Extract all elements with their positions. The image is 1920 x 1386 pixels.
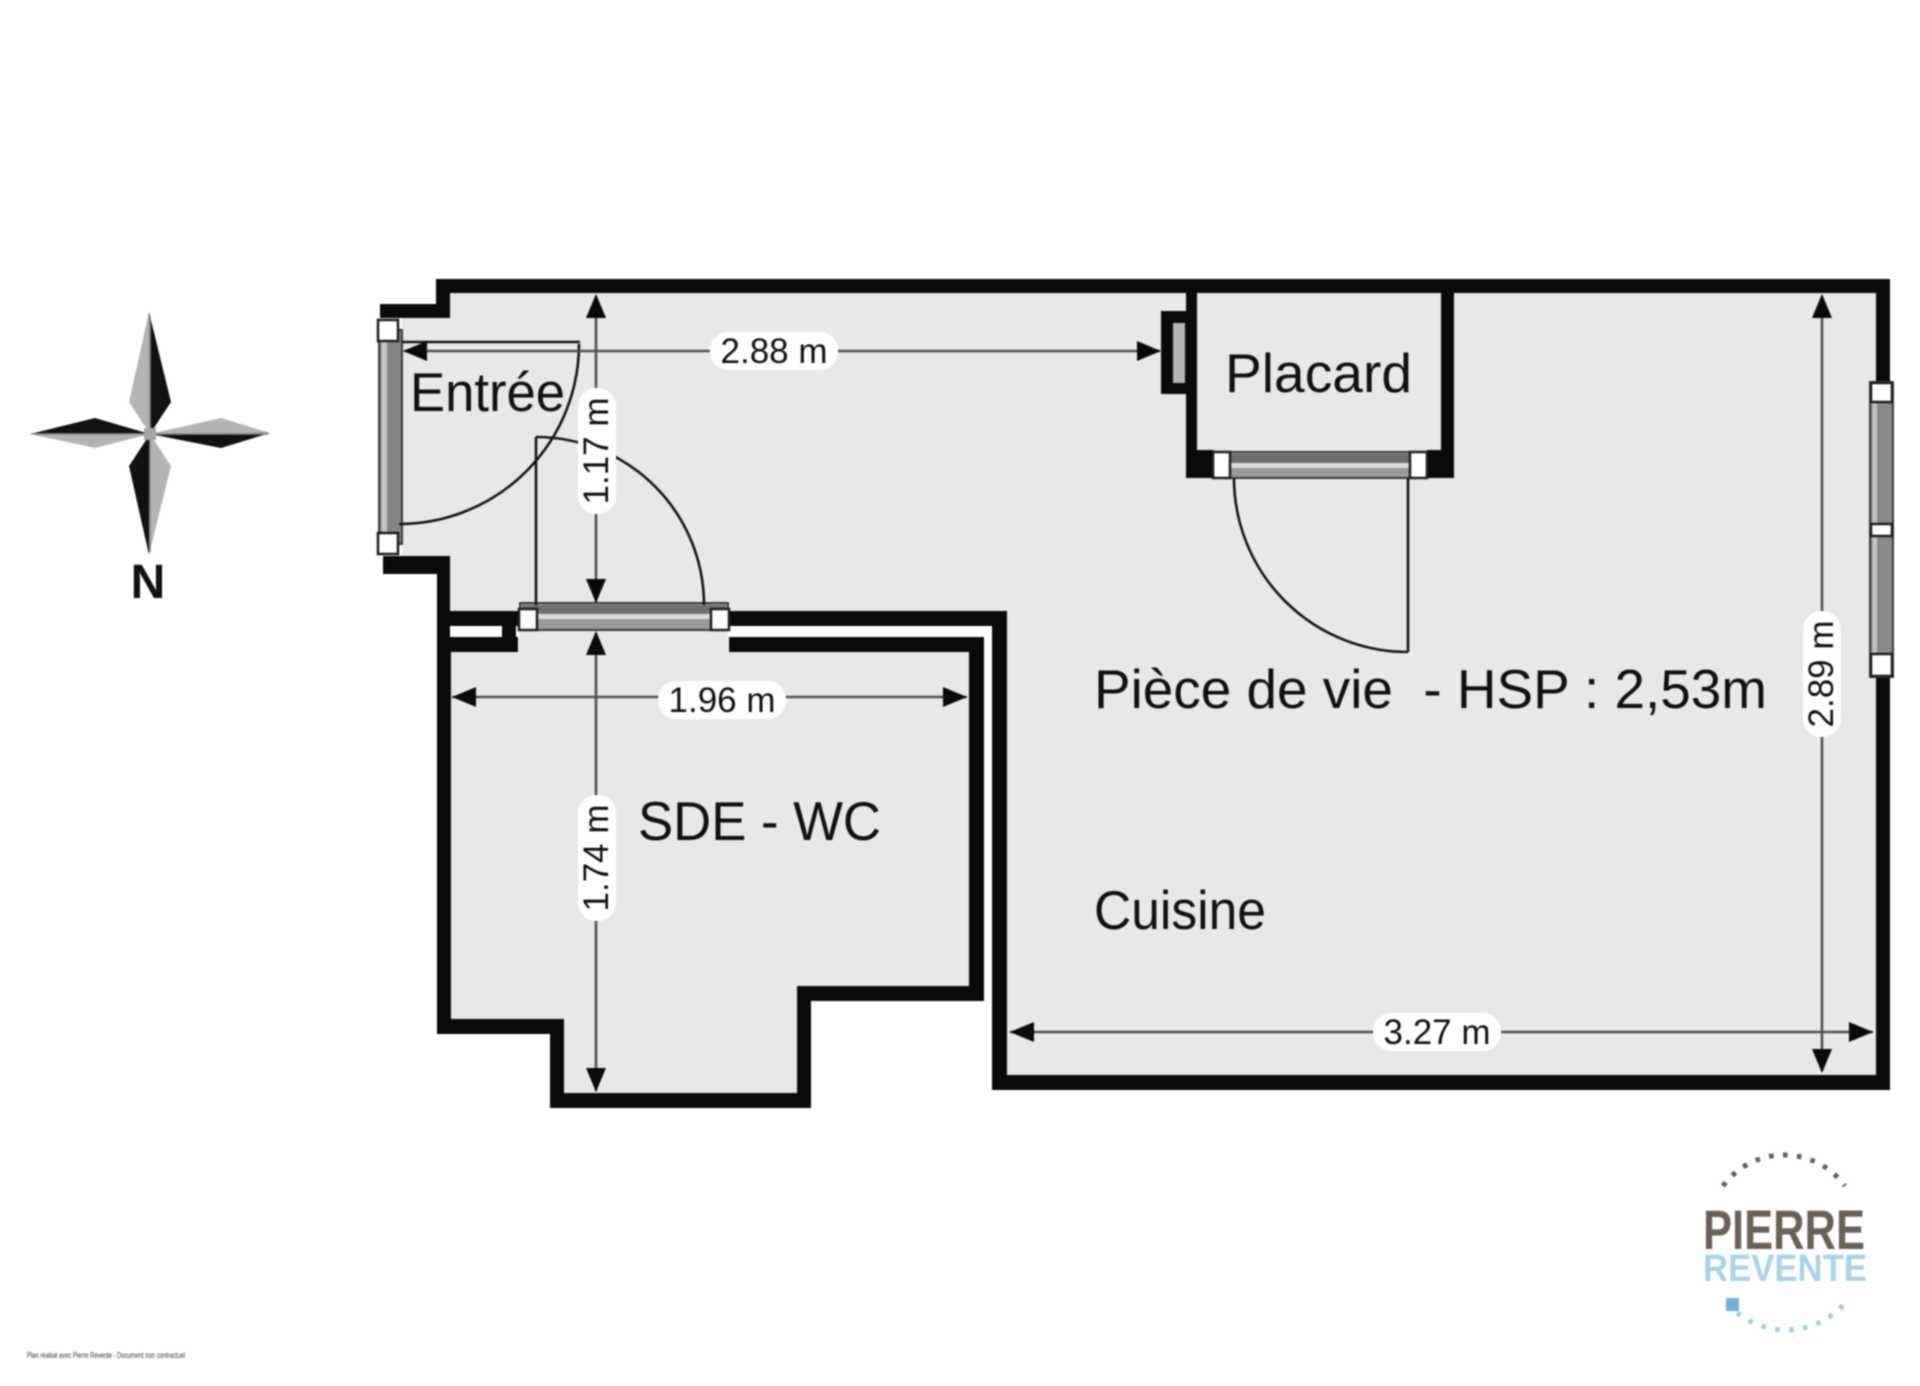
svg-text:3.27 m: 3.27 m — [1384, 1013, 1491, 1052]
svg-text:1.96 m: 1.96 m — [669, 681, 776, 720]
svg-text:N: N — [131, 556, 166, 609]
svg-text:2.89 m: 2.89 m — [1802, 621, 1841, 728]
svg-text:Pièce de vie - HSP : 2,53m: Pièce de vie - HSP : 2,53m — [1094, 658, 1767, 720]
svg-text:2.88 m: 2.88 m — [721, 332, 828, 371]
svg-text:Plan réalisé avec Pierre Reven: Plan réalisé avec Pierre Revente - Docum… — [27, 1350, 185, 1360]
svg-text:1.17 m: 1.17 m — [577, 398, 616, 505]
svg-text:Placard: Placard — [1225, 342, 1412, 404]
svg-text:Cuisine: Cuisine — [1094, 879, 1266, 941]
svg-text:1.74 m: 1.74 m — [577, 805, 616, 912]
svg-text:Entrée: Entrée — [410, 361, 565, 423]
svg-text:REVENTE: REVENTE — [1703, 1248, 1867, 1290]
svg-text:SDE - WC: SDE - WC — [638, 790, 881, 852]
